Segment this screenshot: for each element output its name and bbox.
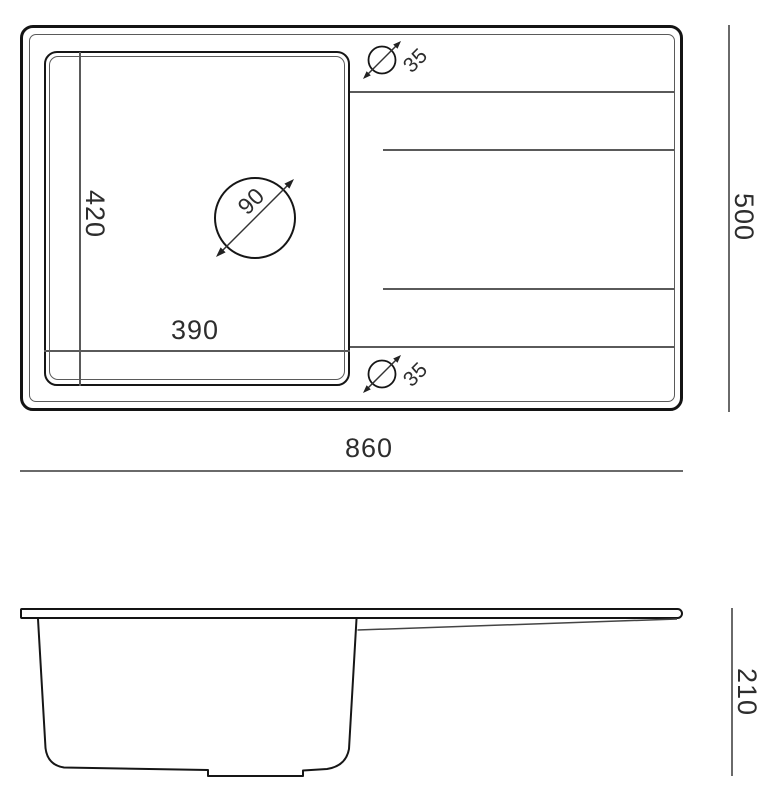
dim-label-side-height: 210 [733, 652, 761, 732]
dim-label-bowl-width: 390 [155, 316, 235, 344]
dim-label-overall-depth: 500 [730, 177, 758, 257]
side-view-drainboard-underside-line [358, 619, 678, 630]
technical-drawing-canvas: 420 390 90 35 35 500 860 210 [0, 0, 781, 800]
drawing-curves-layer [0, 0, 781, 800]
dim-label-overall-width: 860 [319, 434, 419, 462]
side-view-bowl-profile [38, 619, 357, 776]
dim-label-bowl-depth: 420 [81, 174, 109, 254]
